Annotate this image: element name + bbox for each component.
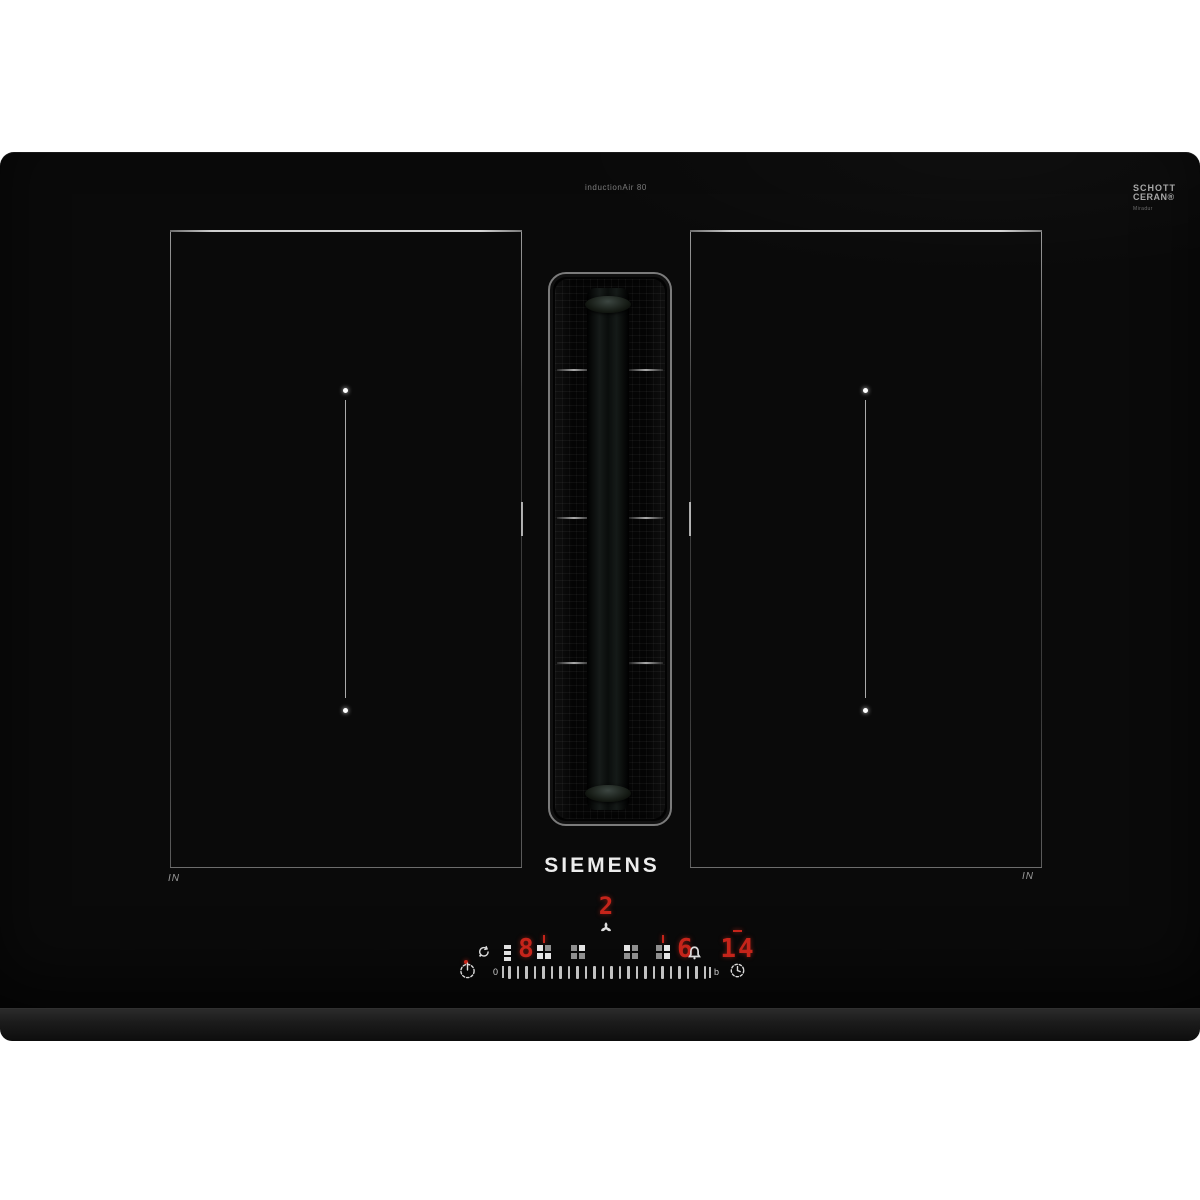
zone-icon[interactable]: [571, 945, 585, 959]
slider-segment[interactable]: [602, 966, 605, 979]
slider-segment[interactable]: [559, 966, 562, 979]
slider-segment[interactable]: [551, 966, 554, 979]
slider-segment[interactable]: [610, 966, 613, 979]
fan-icon[interactable]: [598, 920, 614, 941]
cooking-zone-right: [690, 230, 1042, 868]
vent-extractor-module: [548, 272, 672, 826]
zone-edge: [690, 232, 691, 868]
slider-segment[interactable]: [687, 966, 690, 979]
zone-center-dot: [863, 388, 868, 393]
slider-end-bar: [709, 967, 711, 978]
touch-control-panel: 2 8: [440, 890, 775, 1005]
zone-center-dot: [343, 388, 348, 393]
cooking-zone-left: [170, 230, 522, 868]
vent-roller: [587, 288, 629, 810]
slider-segment[interactable]: [568, 966, 571, 979]
glass-brand-subline: Miradur: [1133, 205, 1176, 214]
zone-active-tick: [543, 935, 545, 943]
vent-roller-cap-bottom: [585, 785, 631, 802]
vent-level-display: 2: [592, 892, 620, 920]
zone-edge: [521, 232, 522, 868]
zone-edge: [170, 232, 171, 868]
product-photo: inductionAir 80 SCHOTT CERAN® Miradur IN…: [0, 0, 1200, 1200]
left-zone-level-display: 8: [512, 934, 540, 964]
slider-max-label: b: [714, 967, 719, 977]
hob-front-edge: [0, 1008, 1200, 1041]
slider-segment[interactable]: [585, 966, 588, 979]
power-slider-bars[interactable]: [508, 965, 706, 979]
zone-edge: [690, 230, 1042, 232]
slider-segment[interactable]: [525, 966, 528, 979]
grille-slat: [557, 369, 591, 371]
zone-split-tick: [521, 502, 523, 536]
brand-logo: SIEMENS: [544, 854, 660, 878]
slider-segment[interactable]: [653, 966, 656, 979]
slider-segment[interactable]: [695, 966, 698, 979]
slider-segment[interactable]: [661, 966, 664, 979]
glass-brand-line2: CERAN®: [1133, 193, 1176, 202]
slider-segment[interactable]: [619, 966, 622, 979]
slider-segment[interactable]: [508, 966, 511, 979]
slider-segment[interactable]: [593, 966, 596, 979]
zone-center-dot: [863, 708, 868, 713]
slider-min-label: 0: [493, 967, 498, 977]
zone-center-line: [865, 400, 866, 698]
grille-slat: [557, 662, 591, 664]
slider-segment[interactable]: [576, 966, 579, 979]
timer-display: 14: [715, 934, 761, 964]
slider-segment[interactable]: [704, 966, 707, 979]
flex-bar-icon[interactable]: [504, 945, 511, 961]
zone-edge: [690, 867, 1042, 868]
grille-slat: [629, 662, 663, 664]
slider-segment[interactable]: [636, 966, 639, 979]
slider-segment[interactable]: [542, 966, 545, 979]
zone-icon[interactable]: [624, 945, 638, 959]
vent-roller-cap-top: [585, 296, 631, 313]
slider-segment[interactable]: [644, 966, 647, 979]
timer-active-tick: [733, 930, 742, 932]
bell-icon[interactable]: [687, 945, 702, 965]
zone-edge: [170, 867, 522, 868]
zone-edge: [1041, 232, 1042, 868]
slider-segment[interactable]: [534, 966, 537, 979]
zone-icon[interactable]: [537, 945, 551, 959]
glass-brand-logo: SCHOTT CERAN® Miradur: [1133, 184, 1176, 214]
zone-active-tick: [662, 935, 664, 943]
clock-icon[interactable]: [729, 962, 746, 984]
slider-segment[interactable]: [678, 966, 681, 979]
zone-center-line: [345, 400, 346, 698]
induction-mark-right: IN: [1022, 871, 1034, 882]
grille-slat: [629, 369, 663, 371]
power-icon[interactable]: [458, 961, 477, 985]
series-label: inductionAir 80: [585, 183, 647, 192]
slider-segment[interactable]: [670, 966, 673, 979]
slider-start-bar: [502, 966, 504, 978]
induction-mark-left: IN: [168, 873, 180, 884]
zone-edge: [170, 230, 522, 232]
slider-segment[interactable]: [627, 966, 630, 979]
slider-segment[interactable]: [517, 966, 520, 979]
grille-slat: [629, 517, 663, 519]
zone-icon[interactable]: [656, 945, 670, 959]
zone-split-tick: [689, 502, 691, 536]
zone-center-dot: [343, 708, 348, 713]
grille-slat: [557, 517, 591, 519]
